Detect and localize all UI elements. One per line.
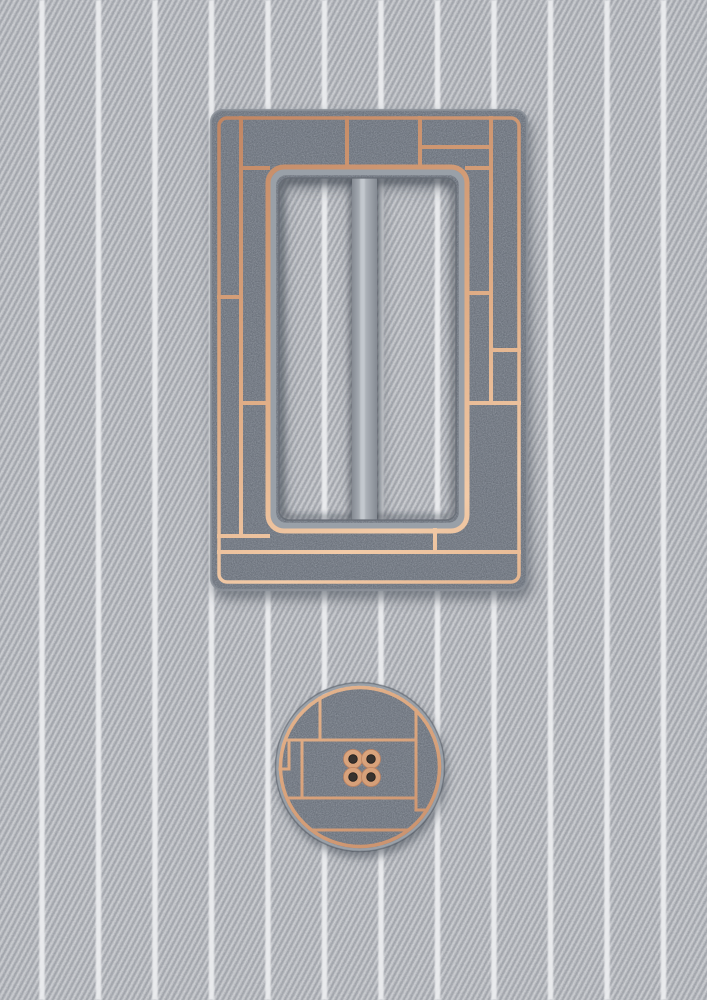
pinstripe xyxy=(39,0,45,1000)
pinstripe xyxy=(661,0,667,1000)
belt-buckle xyxy=(211,110,527,590)
buttonhole xyxy=(367,755,376,764)
pinstripe xyxy=(548,0,554,1000)
pinstripe xyxy=(96,0,102,1000)
photo-stage xyxy=(0,0,707,1000)
buttonhole xyxy=(349,773,358,782)
photo-canvas xyxy=(0,0,707,1000)
pinstripe xyxy=(152,0,158,1000)
button xyxy=(276,683,445,852)
buttonhole xyxy=(349,755,358,764)
buttonhole xyxy=(367,773,376,782)
center-bar-highlight xyxy=(360,173,365,525)
pinstripe xyxy=(604,0,610,1000)
